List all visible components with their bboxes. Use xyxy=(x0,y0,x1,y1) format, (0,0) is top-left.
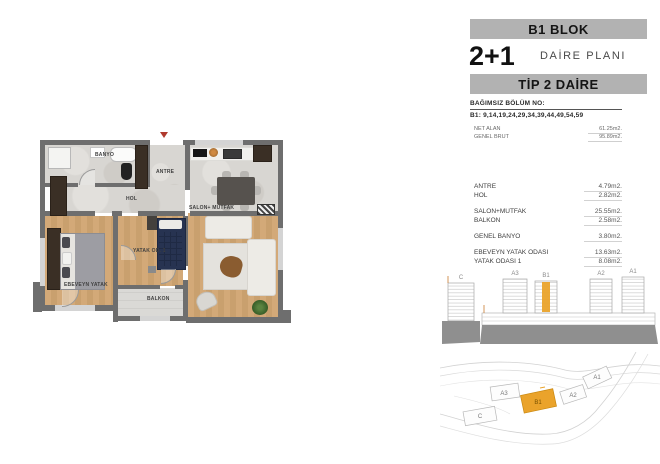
entrance-marker-icon xyxy=(160,132,168,138)
bathroom-closet xyxy=(135,145,148,189)
area-row: EBEVEYN YATAK ODASI 13.63m2. xyxy=(474,249,622,258)
hall-floor xyxy=(50,185,185,213)
road-line xyxy=(440,370,660,379)
dining-table xyxy=(217,177,255,205)
area-value: 13.63m2. xyxy=(584,249,622,258)
area-group: EBEVEYN YATAK ODASI 13.63m2. YATAK ODASI… xyxy=(474,249,622,267)
area-summary: NET ALAN 61.25m2. GENEL BRUT 95.89m2. xyxy=(474,126,622,142)
kitchen-pot xyxy=(209,148,218,157)
area-group: SALON+MUTFAK 25.55m2. BALKON 2.58m2. xyxy=(474,208,622,226)
plant xyxy=(252,300,268,315)
nightstand xyxy=(148,266,156,273)
site-plan: C A3 B1 A2 A1 xyxy=(440,352,660,460)
kitchen-sink xyxy=(223,149,242,159)
unit-type: 2+1 xyxy=(469,41,515,72)
wall-master-divider xyxy=(113,216,118,305)
room-label-hol: HOL xyxy=(126,196,137,202)
site-label-a1: A1 xyxy=(593,375,601,381)
area-label: BALKON xyxy=(474,217,500,226)
section-no-value: B1: 9,14,19,24,29,34,39,44,49,54,59 xyxy=(470,112,583,119)
area-value: 25.55m2. xyxy=(584,208,622,217)
elevation-building-a1 xyxy=(622,277,644,313)
pillow xyxy=(62,267,70,278)
pillow xyxy=(62,237,70,248)
plan-type-label: DAİRE PLANI xyxy=(540,50,626,62)
room-label-yatak1: YATAK OD. 1 xyxy=(133,248,166,254)
area-group: ANTRE 4.79m2. HOL 2.82m2. xyxy=(474,183,622,201)
bedroom1-desk xyxy=(147,216,157,230)
elevation-label-a3: A3 xyxy=(511,271,519,277)
area-label: GENEL BANYO xyxy=(474,233,520,242)
wall-stub-left xyxy=(33,282,42,312)
pillow xyxy=(159,220,182,229)
wall-bottom-right xyxy=(186,317,283,323)
area-label: ANTRE xyxy=(474,183,496,192)
wall-balcony-2 xyxy=(175,285,183,289)
area-row: SALON+MUTFAK 25.55m2. xyxy=(474,208,622,217)
north-tick-icon xyxy=(540,387,545,388)
tip-title-bar: TİP 2 DAİRE xyxy=(470,74,647,94)
site-label-b1: B1 xyxy=(534,400,542,406)
area-value: 3.80m2. xyxy=(584,233,622,242)
block-title-bar: B1 BLOK xyxy=(470,19,647,39)
floor-plan: BANYO ANTRE HOL SALON+ MUTFAK YATAK OD. … xyxy=(0,0,330,464)
balcony-floor xyxy=(118,288,183,316)
wall-mid-3 xyxy=(138,211,185,216)
elevation-label-a1: A1 xyxy=(629,269,637,275)
wall-top-left xyxy=(40,140,150,145)
elevation-label-b1: B1 xyxy=(542,273,550,279)
room-area-list: ANTRE 4.79m2. HOL 2.82m2. SALON+MUTFAK 2… xyxy=(474,183,622,274)
wall-balcony-1 xyxy=(118,285,160,289)
summary-row-net: NET ALAN 61.25m2. xyxy=(474,126,622,134)
room-label-salon: SALON+ MUTFAK xyxy=(189,205,234,211)
window-master-south xyxy=(55,305,95,311)
elevation-ground-main xyxy=(480,325,658,344)
road-line xyxy=(440,406,600,434)
highlighted-unit-column xyxy=(542,282,550,312)
site-label-a3: A3 xyxy=(500,391,508,397)
room-label-banyo: BANYO xyxy=(95,152,114,158)
area-label: EBEVEYN YATAK ODASI xyxy=(474,249,548,258)
elevation-building-a3 xyxy=(503,279,527,313)
sofa-top xyxy=(205,216,252,239)
window-master xyxy=(40,238,45,286)
gross-area-label: GENEL BRUT xyxy=(474,134,509,142)
sofa-right xyxy=(247,239,276,296)
area-label: SALON+MUTFAK xyxy=(474,208,526,217)
room-label-antre: ANTRE xyxy=(156,169,174,175)
section-no-label: BAĞIMSIZ BÖLÜM NO: xyxy=(470,100,622,110)
cooktop xyxy=(193,149,207,157)
elevation-deck xyxy=(482,313,655,325)
wall-stub-right xyxy=(283,310,291,323)
tip-title: TİP 2 DAİRE xyxy=(518,77,598,92)
kitchen-closet xyxy=(253,145,272,162)
building-elevation-diagram: C A3 B1 A2 A1 xyxy=(440,266,660,346)
shaft-hatch xyxy=(257,204,275,215)
block-title: B1 BLOK xyxy=(528,22,589,37)
room-label-balkon: BALKON xyxy=(147,296,170,302)
area-group: GENEL BANYO 3.80m2. xyxy=(474,233,622,242)
area-row: BALKON 2.58m2. xyxy=(474,217,622,226)
window-balcony xyxy=(140,316,170,321)
elevation-ground-c xyxy=(442,321,480,344)
area-label: HOL xyxy=(474,192,487,201)
area-value: 2.82m2. xyxy=(584,192,622,201)
area-row: HOL 2.82m2. xyxy=(474,192,622,201)
road-line xyxy=(440,362,660,371)
net-area-label: NET ALAN xyxy=(474,126,501,134)
wall-living-divider-2 xyxy=(183,280,188,317)
elevation-label-c: C xyxy=(459,275,464,281)
elevation-label-a2: A2 xyxy=(597,271,605,277)
gross-area-value: 95.89m2. xyxy=(588,134,622,142)
pillow xyxy=(62,252,72,265)
window-living xyxy=(278,228,283,270)
area-value: 4.79m2. xyxy=(584,183,622,192)
site-label-a2: A2 xyxy=(569,393,577,399)
site-label-c: C xyxy=(478,414,483,420)
room-label-ebeveyn: EBEVEYN YATAK xyxy=(64,282,108,288)
master-wardrobe xyxy=(47,228,61,290)
summary-row-brut: GENEL BRUT 95.89m2. xyxy=(474,134,622,142)
toilet xyxy=(121,163,132,180)
net-area-value: 61.25m2. xyxy=(588,126,622,134)
hall-wardrobe xyxy=(50,176,67,216)
shower xyxy=(48,147,71,169)
elevation-building-c xyxy=(448,283,474,321)
area-value: 2.58m2. xyxy=(584,217,622,226)
area-row: GENEL BANYO 3.80m2. xyxy=(474,233,622,242)
area-row: ANTRE 4.79m2. xyxy=(474,183,622,192)
window-kitchen xyxy=(195,140,243,145)
elevation-building-a2 xyxy=(590,279,612,313)
